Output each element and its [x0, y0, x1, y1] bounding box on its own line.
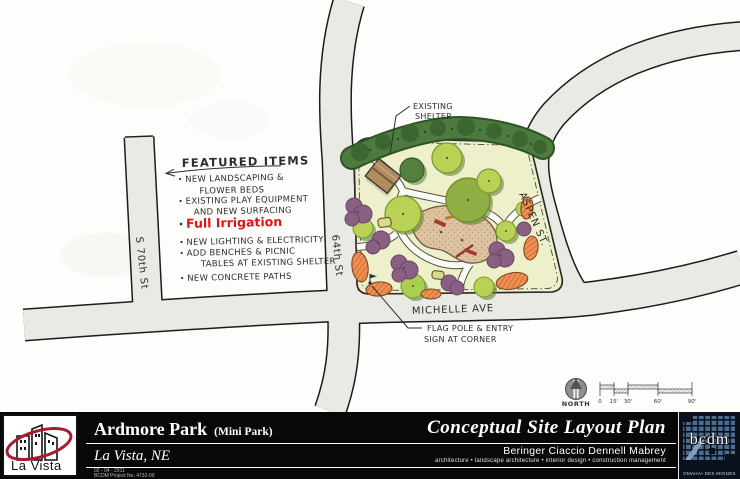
featured-items: FEATURED ITEMS NEW LANDSCAPING & FLOWER …: [166, 153, 337, 284]
scale-tick: 15': [610, 399, 619, 405]
sheet: EXISTING SHELTER FLAG POLE & ENTRY SIGN …: [0, 0, 740, 479]
bcdm-logo: bcdm OMAHA• DES MOINES: [678, 412, 740, 479]
featured-items-title: FEATURED ITEMS: [182, 153, 310, 170]
scale-tick: 60': [654, 399, 663, 405]
scale-tick: 90': [688, 399, 697, 405]
featured-item: NEW CONCRETE PATHS: [187, 272, 292, 284]
firm-block: Beringer Ciaccio Dennell Mabrey architec…: [435, 445, 666, 464]
lavista-logo: La Vista: [2, 414, 78, 477]
title-block: La Vista Ardmore Park(Mini Park) Concept…: [0, 412, 740, 479]
featured-item-highlight: Full Irrigation: [186, 214, 282, 231]
north-arrow: NORTH: [562, 378, 591, 408]
firm-services: architecture • landscape architecture • …: [435, 458, 666, 464]
project-number: BCDM Project No. 4732-00: [94, 474, 155, 479]
location: La Vista, NE: [94, 448, 170, 465]
scale-bar: 0 15' 30' 60' 90': [598, 382, 696, 405]
park-type-text: (Mini Park): [214, 426, 272, 438]
lavista-logo-text: La Vista: [11, 458, 62, 473]
divider-line: [86, 467, 676, 468]
park-name-text: Ardmore Park: [94, 419, 207, 439]
north-label: NORTH: [562, 400, 591, 408]
firm-name: Beringer Ciaccio Dennell Mabrey: [435, 445, 666, 457]
bcdm-logo-text: bcdm: [679, 431, 740, 449]
bcdm-logo-subtext: OMAHA• DES MOINES: [679, 471, 740, 476]
scale-tick: 0: [598, 399, 602, 405]
flag-pole-label: FLAG POLE & ENTRY SIGN AT CORNER: [424, 324, 516, 344]
sheet-meta: 02 - 04 - 2011 BCDM Project No. 4732-00: [94, 469, 155, 479]
site-plan-drawing: EXISTING SHELTER FLAG POLE & ENTRY SIGN …: [0, 0, 740, 412]
featured-item: NEW LIGHTING & ELECTRICITY: [186, 235, 324, 248]
divider-line: [86, 443, 676, 444]
featured-item: NEW LANDSCAPING & FLOWER BEDS: [185, 173, 287, 197]
existing-shelter-label: EXISTING SHELTER: [413, 102, 456, 121]
featured-item: ADD BENCHES & PICNIC TABLES AT EXISTING …: [187, 246, 336, 270]
park-name: Ardmore Park(Mini Park): [94, 419, 273, 440]
sheet-title: Conceptual Site Layout Plan: [427, 417, 666, 439]
bullets: [179, 178, 184, 279]
scale-tick: 30': [624, 399, 633, 405]
